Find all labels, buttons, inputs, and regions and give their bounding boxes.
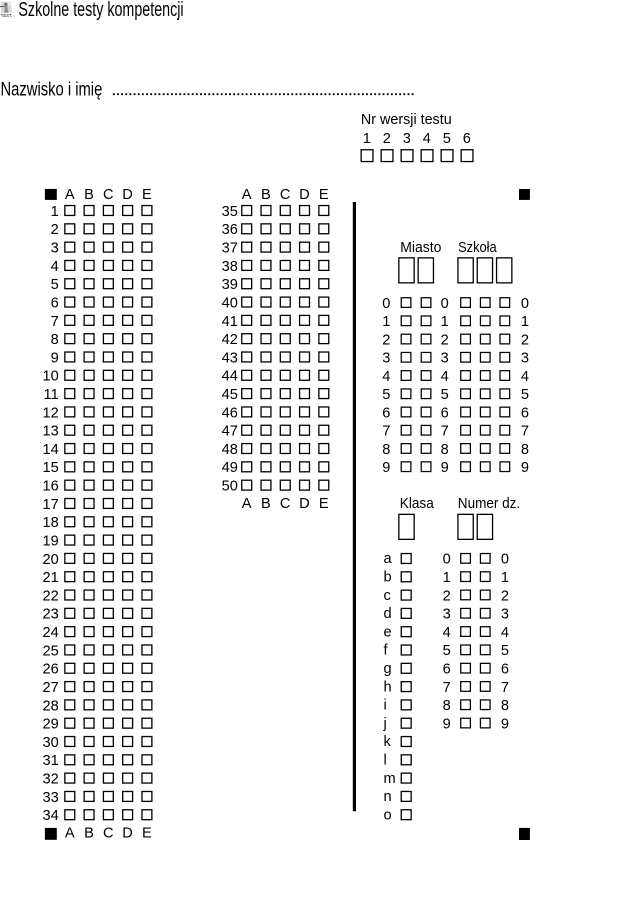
svg-text:k: k [384, 734, 392, 750]
svg-text:Numer dz.: Numer dz. [458, 496, 520, 512]
svg-text:n: n [384, 789, 392, 805]
svg-text:10: 10 [42, 369, 58, 385]
svg-text:b: b [384, 570, 392, 586]
svg-text:C: C [103, 826, 114, 842]
svg-text:g: g [384, 661, 392, 677]
svg-text:3: 3 [403, 131, 411, 147]
svg-text:m: m [384, 771, 396, 787]
svg-text:25: 25 [42, 643, 58, 659]
svg-text:32: 32 [42, 772, 58, 788]
svg-text:4: 4 [51, 259, 59, 275]
svg-text:5: 5 [51, 277, 59, 293]
svg-text:3: 3 [501, 607, 509, 623]
svg-text:11: 11 [44, 387, 59, 403]
svg-text:17: 17 [42, 497, 58, 513]
svg-text:26: 26 [42, 662, 58, 678]
svg-text:38: 38 [222, 259, 238, 275]
svg-text:16: 16 [42, 479, 58, 495]
svg-text:D: D [299, 187, 310, 203]
svg-text:2: 2 [441, 332, 449, 348]
svg-text:7: 7 [443, 680, 451, 696]
svg-text:3: 3 [521, 351, 529, 367]
svg-text:E: E [319, 187, 329, 203]
svg-text:40: 40 [222, 295, 238, 311]
svg-text:Nr wersji testu: Nr wersji testu [361, 112, 452, 128]
svg-text:1: 1 [51, 204, 59, 220]
svg-text:42: 42 [222, 332, 238, 348]
svg-text:2: 2 [521, 332, 529, 348]
svg-text:8: 8 [382, 442, 390, 458]
svg-text:E: E [319, 496, 329, 512]
svg-text:9: 9 [441, 460, 449, 476]
svg-text:A: A [65, 826, 75, 842]
svg-text:B: B [261, 496, 271, 512]
svg-text:3: 3 [441, 351, 449, 367]
svg-text:34: 34 [42, 808, 58, 824]
svg-text:49: 49 [222, 460, 238, 476]
svg-text:a: a [384, 551, 393, 567]
svg-text:o: o [384, 807, 392, 823]
svg-text:B: B [84, 826, 94, 842]
svg-text:1: 1 [501, 570, 509, 586]
svg-text:j: j [383, 716, 387, 732]
svg-text:20: 20 [42, 552, 58, 568]
svg-text:9: 9 [51, 350, 59, 366]
svg-text:30: 30 [42, 735, 58, 751]
svg-text:4: 4 [382, 369, 390, 385]
svg-text:B: B [84, 187, 94, 203]
svg-text:B: B [261, 187, 271, 203]
svg-text:28: 28 [42, 698, 58, 714]
svg-text:36: 36 [222, 222, 238, 238]
svg-text:6: 6 [51, 295, 59, 311]
svg-text:A: A [242, 496, 252, 512]
svg-text:8: 8 [501, 698, 509, 714]
svg-text:47: 47 [222, 424, 238, 440]
svg-text:45: 45 [222, 387, 238, 403]
svg-text:A: A [65, 187, 75, 203]
svg-text:21: 21 [42, 570, 58, 586]
svg-text:6: 6 [463, 131, 471, 147]
svg-text:5: 5 [521, 387, 529, 403]
svg-text:D: D [122, 826, 133, 842]
svg-text:33: 33 [42, 790, 58, 806]
svg-text:8: 8 [441, 442, 449, 458]
svg-text:Szkoła: Szkoła [458, 240, 497, 256]
svg-text:12: 12 [42, 405, 58, 421]
svg-text:0: 0 [443, 552, 451, 568]
svg-text:37: 37 [222, 241, 238, 257]
svg-text:6: 6 [441, 405, 449, 421]
svg-text:h: h [384, 679, 392, 695]
svg-text:19: 19 [42, 533, 58, 549]
svg-text:13: 13 [42, 424, 58, 440]
svg-text:1: 1 [363, 131, 371, 147]
svg-text:22: 22 [42, 588, 58, 604]
svg-text:1: 1 [443, 570, 451, 586]
svg-text:0: 0 [501, 552, 509, 568]
svg-text:2: 2 [51, 222, 59, 238]
svg-text:C: C [280, 496, 291, 512]
svg-text:C: C [280, 187, 291, 203]
svg-text:5: 5 [441, 387, 449, 403]
svg-text:8: 8 [521, 442, 529, 458]
svg-text:6: 6 [521, 405, 529, 421]
svg-text:41: 41 [222, 314, 238, 330]
svg-text:Klasa: Klasa [400, 496, 435, 512]
svg-text:d: d [384, 606, 392, 622]
svg-text:7: 7 [51, 314, 59, 330]
svg-text:2: 2 [443, 588, 451, 604]
svg-text:D: D [122, 187, 133, 203]
svg-text:27: 27 [42, 680, 58, 696]
svg-text:0: 0 [441, 296, 449, 312]
svg-text:39: 39 [222, 277, 238, 293]
svg-text:14: 14 [42, 442, 58, 458]
svg-text:0: 0 [521, 296, 529, 312]
svg-text:4: 4 [423, 131, 431, 147]
svg-text:5: 5 [382, 387, 390, 403]
svg-text:C: C [103, 187, 114, 203]
svg-text:E: E [142, 187, 152, 203]
svg-text:c: c [384, 588, 391, 604]
svg-text:4: 4 [443, 625, 451, 641]
svg-text:15: 15 [42, 460, 58, 476]
svg-text:E: E [142, 826, 152, 842]
svg-text:46: 46 [222, 405, 238, 421]
svg-text:i: i [384, 698, 387, 714]
svg-text:4: 4 [521, 369, 529, 385]
svg-text:9: 9 [521, 460, 529, 476]
svg-text:Szkolne testy kompetencji: Szkolne testy kompetencji [18, 0, 183, 21]
svg-text:TEST.: TEST. [1, 13, 12, 18]
svg-text:e: e [384, 624, 392, 640]
svg-text:24: 24 [42, 625, 58, 641]
svg-text:7: 7 [501, 680, 509, 696]
svg-text:44: 44 [222, 369, 238, 385]
svg-text:1: 1 [441, 314, 449, 330]
svg-text:2: 2 [382, 332, 390, 348]
svg-text:4: 4 [501, 625, 509, 641]
svg-text:3: 3 [443, 607, 451, 623]
svg-text:9: 9 [501, 716, 509, 732]
svg-text:5: 5 [443, 131, 451, 147]
svg-text:8: 8 [443, 698, 451, 714]
svg-text:5: 5 [501, 643, 509, 659]
svg-text:48: 48 [222, 442, 238, 458]
svg-text:2: 2 [383, 131, 391, 147]
svg-text:5: 5 [443, 643, 451, 659]
svg-text:7: 7 [521, 424, 529, 440]
svg-text:23: 23 [42, 607, 58, 623]
svg-text:0: 0 [382, 296, 390, 312]
svg-text:9: 9 [443, 716, 451, 732]
svg-text:D: D [299, 496, 310, 512]
svg-text:7: 7 [441, 424, 449, 440]
svg-text:6: 6 [501, 662, 509, 678]
svg-text:1: 1 [521, 314, 529, 330]
svg-text:4: 4 [441, 369, 449, 385]
svg-text:7: 7 [382, 424, 390, 440]
svg-text:Nazwisko i imię: Nazwisko i imię [1, 78, 103, 100]
svg-text:43: 43 [222, 350, 238, 366]
svg-text:35: 35 [222, 204, 238, 220]
svg-text:3: 3 [51, 241, 59, 257]
svg-text:31: 31 [42, 753, 58, 769]
svg-text:9: 9 [382, 460, 390, 476]
svg-text:50: 50 [222, 479, 238, 495]
svg-text:l: l [384, 753, 387, 769]
svg-text:3: 3 [382, 351, 390, 367]
svg-text:Miasto: Miasto [400, 240, 441, 256]
svg-text:1: 1 [382, 314, 390, 330]
svg-text:A: A [242, 187, 252, 203]
svg-text:29: 29 [42, 717, 58, 733]
svg-text:6: 6 [382, 405, 390, 421]
svg-text:18: 18 [42, 515, 58, 531]
svg-text:2: 2 [501, 588, 509, 604]
svg-text:6: 6 [443, 662, 451, 678]
svg-text:8: 8 [51, 332, 59, 348]
